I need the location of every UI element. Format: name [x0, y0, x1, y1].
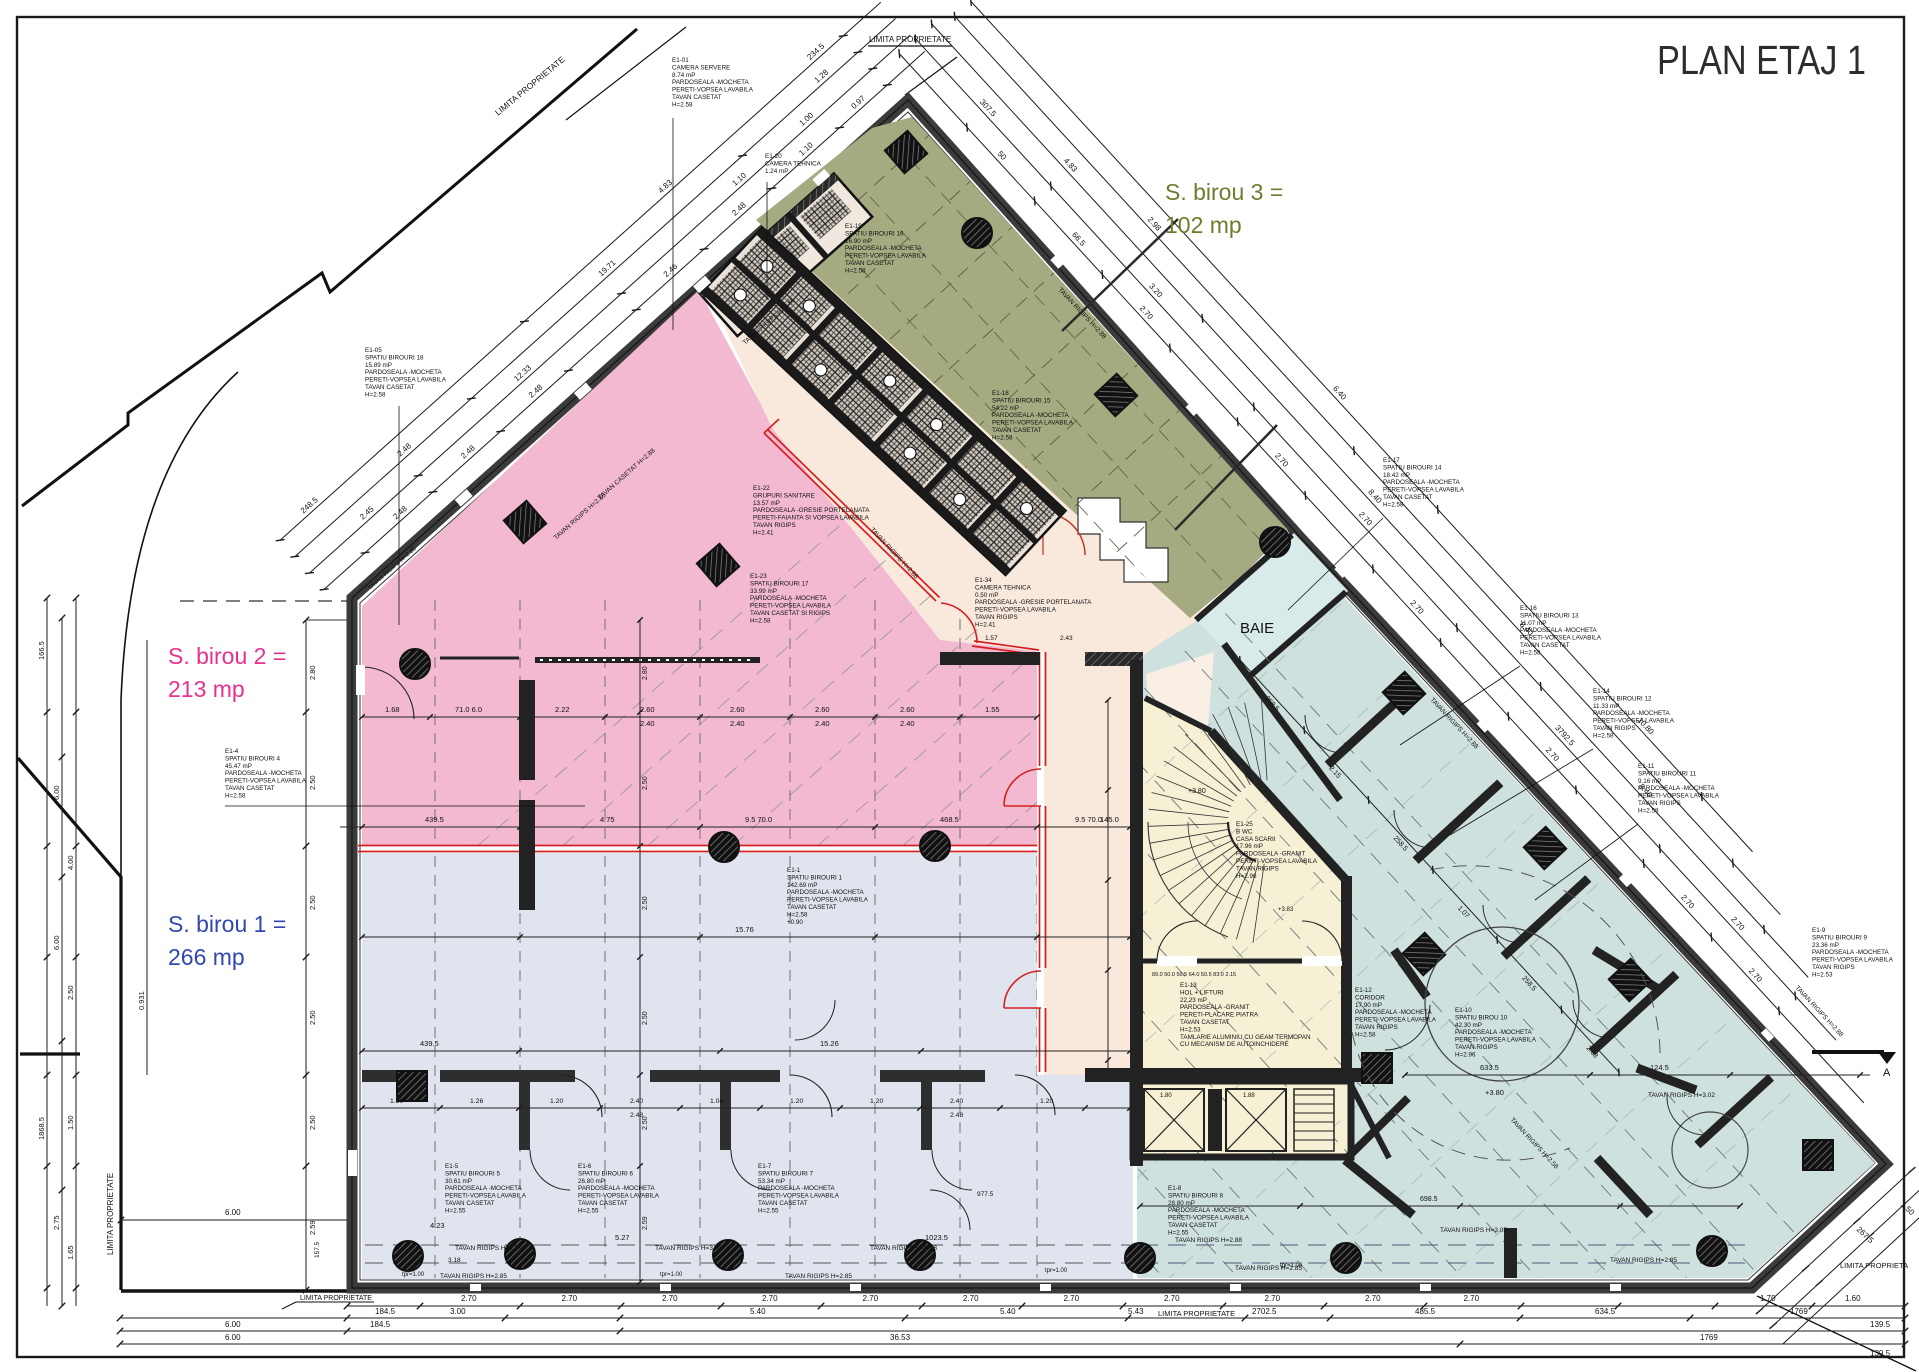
- svg-text:124.5: 124.5: [1650, 1063, 1669, 1072]
- svg-text:4.00: 4.00: [66, 855, 75, 870]
- svg-text:2.50: 2.50: [66, 985, 75, 1000]
- svg-text:5.40: 5.40: [1000, 1307, 1016, 1316]
- svg-text:2.70: 2.70: [662, 1294, 678, 1303]
- svg-text:2.80: 2.80: [308, 665, 317, 680]
- svg-text:TAVAN RIGIPS H=2.50: TAVAN RIGIPS H=2.50: [455, 1245, 522, 1252]
- svg-text:2.60: 2.60: [900, 705, 915, 714]
- svg-text:698.5: 698.5: [1420, 1196, 1438, 1203]
- svg-text:468.5: 468.5: [940, 815, 959, 824]
- svg-text:S. birou 2 =: S. birou 2 =: [168, 643, 286, 669]
- svg-text:266 mp: 266 mp: [168, 944, 245, 970]
- svg-text:S. birou 1 =: S. birou 1 =: [168, 911, 286, 937]
- svg-text:2.40: 2.40: [630, 1098, 643, 1105]
- svg-text:439.5: 439.5: [425, 815, 444, 824]
- svg-text:213 mp: 213 mp: [168, 676, 245, 702]
- svg-text:2.70: 2.70: [1064, 1294, 1080, 1303]
- svg-text:TAVAN RIGIPS H=3.02: TAVAN RIGIPS H=3.02: [1648, 1092, 1715, 1099]
- svg-text:439.5: 439.5: [420, 1039, 439, 1048]
- svg-text:1.80: 1.80: [1160, 1093, 1172, 1099]
- svg-text:2.60: 2.60: [815, 705, 830, 714]
- svg-text:1.30: 1.30: [390, 1098, 403, 1105]
- svg-text:2.75: 2.75: [52, 1215, 61, 1230]
- svg-text:9.5 70.0: 9.5 70.0: [1075, 815, 1102, 824]
- svg-text:157.5: 157.5: [314, 1241, 321, 1258]
- svg-text:3.00: 3.00: [450, 1307, 466, 1316]
- svg-text:2.70: 2.70: [1464, 1294, 1480, 1303]
- svg-text:PLAN ETAJ 1: PLAN ETAJ 1: [1657, 37, 1866, 83]
- svg-text:2.70: 2.70: [863, 1294, 879, 1303]
- svg-text:S. birou 3 =: S. birou 3 =: [1165, 179, 1283, 205]
- svg-text:2702.5: 2702.5: [1252, 1307, 1277, 1316]
- svg-text:2.40: 2.40: [640, 719, 655, 728]
- svg-text:LIMITA PROPRIETATE: LIMITA PROPRIETATE: [1158, 1309, 1235, 1318]
- svg-text:TAVAN RIGIPS H=2.85: TAVAN RIGIPS H=2.85: [1610, 1257, 1677, 1264]
- svg-text:6.00: 6.00: [225, 1208, 241, 1217]
- svg-text:633.5: 633.5: [1480, 1063, 1499, 1072]
- svg-text:5.27: 5.27: [615, 1233, 630, 1242]
- svg-text:2.70: 2.70: [1265, 1294, 1281, 1303]
- svg-text:1868.5: 1868.5: [37, 1117, 46, 1140]
- svg-text:2.60: 2.60: [730, 705, 745, 714]
- svg-text:TAVAN RIGIPS H=3.00: TAVAN RIGIPS H=3.00: [655, 1245, 722, 1252]
- svg-text:2.50: 2.50: [642, 1116, 649, 1130]
- svg-text:184.5: 184.5: [370, 1320, 391, 1329]
- svg-text:LIMITA PROPRIETATE: LIMITA PROPRIETATE: [300, 1295, 372, 1302]
- svg-text:2.48: 2.48: [950, 1112, 963, 1119]
- svg-text:2.40: 2.40: [730, 719, 745, 728]
- svg-text:2.40: 2.40: [815, 719, 830, 728]
- svg-text:9.5 70.0: 9.5 70.0: [745, 815, 772, 824]
- svg-text:2.70: 2.70: [562, 1294, 578, 1303]
- svg-text:2.22: 2.22: [555, 705, 570, 714]
- svg-text:2.70: 2.70: [762, 1294, 778, 1303]
- svg-text:tpr=1.00: tpr=1.00: [402, 1272, 425, 1278]
- svg-text:tpr=1.00: tpr=1.00: [660, 1272, 683, 1278]
- svg-text:LIMITA PROPRIETATE: LIMITA PROPRIETATE: [106, 1173, 115, 1255]
- svg-text:6.00: 6.00: [52, 935, 61, 950]
- svg-text:TAVAN RIGIPS H=2.88: TAVAN RIGIPS H=2.88: [1175, 1237, 1242, 1244]
- svg-text:634.5: 634.5: [1595, 1307, 1616, 1316]
- svg-text:5.43: 5.43: [1128, 1307, 1144, 1316]
- svg-text:1023.5: 1023.5: [925, 1233, 948, 1242]
- svg-text:1.88: 1.88: [1243, 1093, 1255, 1099]
- svg-text:6.00: 6.00: [225, 1320, 241, 1329]
- svg-text:2.50: 2.50: [642, 1011, 649, 1025]
- svg-text:1.68: 1.68: [385, 705, 400, 714]
- svg-text:LIMITA PROPRIETA: LIMITA PROPRIETA: [1840, 1261, 1908, 1270]
- svg-text:1.20: 1.20: [550, 1098, 563, 1105]
- svg-text:6.00: 6.00: [225, 1333, 241, 1342]
- svg-text:485.5: 485.5: [1415, 1307, 1436, 1316]
- svg-text:4.75: 4.75: [600, 815, 615, 824]
- svg-text:139.5: 139.5: [1870, 1320, 1891, 1329]
- svg-text:0.931: 0.931: [137, 991, 146, 1010]
- svg-text:2.70: 2.70: [1164, 1294, 1180, 1303]
- svg-text:71.0 6.0: 71.0 6.0: [455, 705, 482, 714]
- svg-text:1.70: 1.70: [1760, 1294, 1776, 1303]
- svg-text:4.23: 4.23: [430, 1221, 445, 1230]
- svg-text:TAVAN RIGIPS H=2.85: TAVAN RIGIPS H=2.85: [440, 1273, 507, 1280]
- svg-text:2.70: 2.70: [461, 1294, 477, 1303]
- svg-text:1.50: 1.50: [66, 1115, 75, 1130]
- svg-text:LIMITA PROPRIETATE: LIMITA PROPRIETATE: [869, 35, 951, 44]
- svg-text:TAVAN RIGIPS H=3.02: TAVAN RIGIPS H=3.02: [1440, 1227, 1507, 1234]
- svg-text:1.20: 1.20: [790, 1098, 803, 1105]
- svg-text:+3.80: +3.80: [1188, 788, 1206, 795]
- svg-text:2.80: 2.80: [642, 666, 649, 680]
- svg-text:A: A: [1883, 1067, 1891, 1079]
- svg-text:+3.80: +3.80: [1485, 1088, 1504, 1097]
- svg-text:5.40: 5.40: [750, 1307, 766, 1316]
- svg-text:36.53: 36.53: [890, 1333, 911, 1342]
- svg-text:1.65: 1.65: [66, 1245, 75, 1260]
- svg-text:15.26: 15.26: [820, 1039, 839, 1048]
- svg-text:2.40: 2.40: [950, 1098, 963, 1105]
- svg-text:2.50: 2.50: [308, 895, 317, 910]
- svg-text:1.60: 1.60: [1845, 1294, 1861, 1303]
- svg-text:1769: 1769: [1790, 1307, 1808, 1316]
- svg-text:2.43: 2.43: [1060, 635, 1073, 642]
- svg-text:102 mp: 102 mp: [1165, 212, 1242, 238]
- svg-text:3.18: 3.18: [448, 1257, 461, 1264]
- svg-text:2.40: 2.40: [900, 719, 915, 728]
- svg-text:2.50: 2.50: [642, 776, 649, 790]
- svg-text:6.00: 6.00: [52, 785, 61, 800]
- svg-text:1.04: 1.04: [710, 1098, 723, 1105]
- svg-text:184.5: 184.5: [375, 1307, 396, 1316]
- svg-text:139.5: 139.5: [1870, 1349, 1891, 1358]
- svg-text:2.70: 2.70: [1365, 1294, 1381, 1303]
- svg-text:tpr=1.00: tpr=1.00: [1045, 1268, 1068, 1274]
- svg-text:1.26: 1.26: [470, 1098, 483, 1105]
- svg-text:+3.83: +3.83: [1278, 907, 1294, 913]
- svg-text:89.0 50.0 50.5 64.0 50.5: 89.0 50.0 50.5 64.0 50.5 83.0 2.15: [1152, 972, 1236, 978]
- svg-text:BAIE: BAIE: [1240, 620, 1274, 637]
- svg-text:1.20: 1.20: [870, 1098, 883, 1105]
- svg-text:TAVAN RIGIPS H=0.88: TAVAN RIGIPS H=0.88: [870, 1245, 937, 1252]
- svg-text:166.5: 166.5: [37, 641, 46, 660]
- svg-text:tpr=1.00: tpr=1.00: [1280, 1263, 1303, 1269]
- svg-text:2.50: 2.50: [308, 1115, 317, 1130]
- svg-text:2.50: 2.50: [308, 1010, 317, 1025]
- svg-text:2.59: 2.59: [308, 1220, 317, 1235]
- svg-text:TAVAN RIGIPS H=2.85: TAVAN RIGIPS H=2.85: [785, 1273, 852, 1280]
- svg-text:2.70: 2.70: [963, 1294, 979, 1303]
- svg-text:2.50: 2.50: [642, 896, 649, 910]
- svg-text:977.5: 977.5: [977, 1191, 994, 1198]
- svg-text:145.0: 145.0: [1100, 815, 1119, 824]
- svg-text:2.59: 2.59: [642, 1216, 649, 1230]
- svg-text:15.76: 15.76: [735, 925, 754, 934]
- svg-text:1.55: 1.55: [985, 705, 1000, 714]
- svg-text:1769: 1769: [1700, 1333, 1718, 1342]
- svg-text:2.50: 2.50: [308, 775, 317, 790]
- svg-text:1.57: 1.57: [985, 635, 998, 642]
